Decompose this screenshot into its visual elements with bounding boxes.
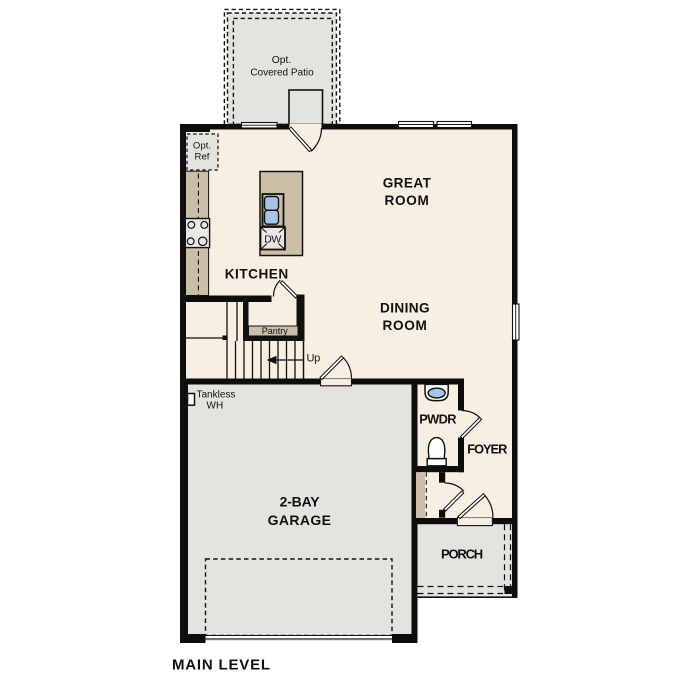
svg-text:ROOM: ROOM: [384, 193, 429, 208]
svg-text:Pantry: Pantry: [262, 326, 289, 336]
svg-text:GREAT: GREAT: [383, 176, 432, 191]
svg-text:2-BAY: 2-BAY: [280, 493, 321, 509]
svg-text:GARAGE: GARAGE: [268, 512, 332, 528]
svg-text:FOYER: FOYER: [467, 442, 507, 457]
svg-text:WH: WH: [207, 401, 224, 412]
svg-text:PWDR: PWDR: [419, 412, 456, 427]
svg-text:ROOM: ROOM: [382, 318, 427, 333]
svg-text:Tankless: Tankless: [197, 390, 236, 401]
svg-text:MAIN LEVEL: MAIN LEVEL: [172, 657, 271, 674]
svg-text:Opt.: Opt.: [193, 140, 211, 151]
svg-text:Covered Patio: Covered Patio: [250, 68, 314, 79]
svg-text:Up: Up: [307, 353, 321, 365]
svg-text:DINING: DINING: [380, 301, 430, 316]
svg-text:Opt.: Opt.: [272, 55, 291, 66]
svg-text:DW: DW: [264, 234, 281, 246]
svg-text:PORCH: PORCH: [441, 546, 483, 561]
svg-text:KITCHEN: KITCHEN: [225, 266, 289, 281]
svg-text:Ref: Ref: [195, 152, 210, 163]
